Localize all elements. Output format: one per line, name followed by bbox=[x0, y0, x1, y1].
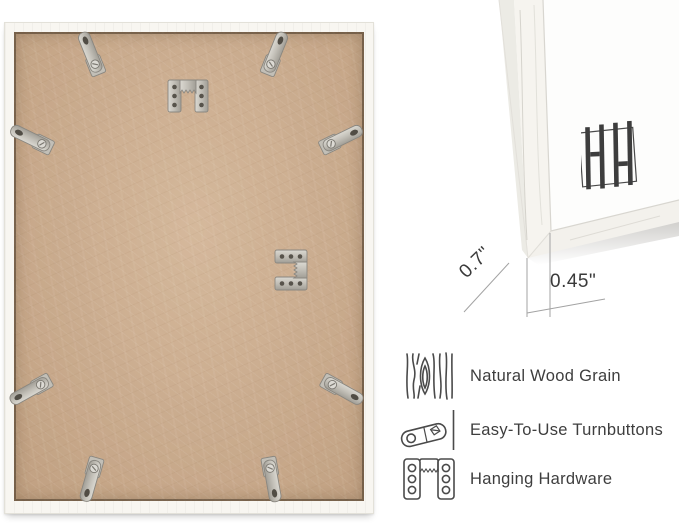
feature-row-turnbuttons: Easy-To-Use Turnbuttons bbox=[399, 406, 663, 454]
sawtooth-hanger-icon bbox=[399, 456, 459, 502]
mat-area bbox=[543, 0, 679, 231]
mdf-backing bbox=[14, 32, 364, 501]
frame-back-photo bbox=[4, 22, 374, 514]
feature-label: Easy-To-Use Turnbuttons bbox=[470, 421, 663, 440]
wood-grain-icon bbox=[399, 352, 459, 400]
dimension-face-width-label: 0.45" bbox=[550, 271, 596, 293]
frame-face-bottom bbox=[528, 200, 679, 258]
feature-label: Hanging Hardware bbox=[470, 470, 612, 489]
product-image: 0.7" 0.45" Natural Wood Grain bbox=[0, 0, 679, 523]
frame-face-vertical bbox=[514, 0, 551, 258]
feature-row-wood-grain: Natural Wood Grain bbox=[399, 350, 621, 402]
turnbutton-icon bbox=[399, 407, 459, 453]
feature-row-hanging-hardware: Hanging Hardware bbox=[399, 454, 612, 504]
feature-label: Natural Wood Grain bbox=[470, 367, 621, 386]
brand-logo-hh bbox=[581, 118, 645, 198]
frame-outer-edge bbox=[499, 0, 528, 258]
dimension-depth-label: 0.7" bbox=[455, 243, 496, 283]
